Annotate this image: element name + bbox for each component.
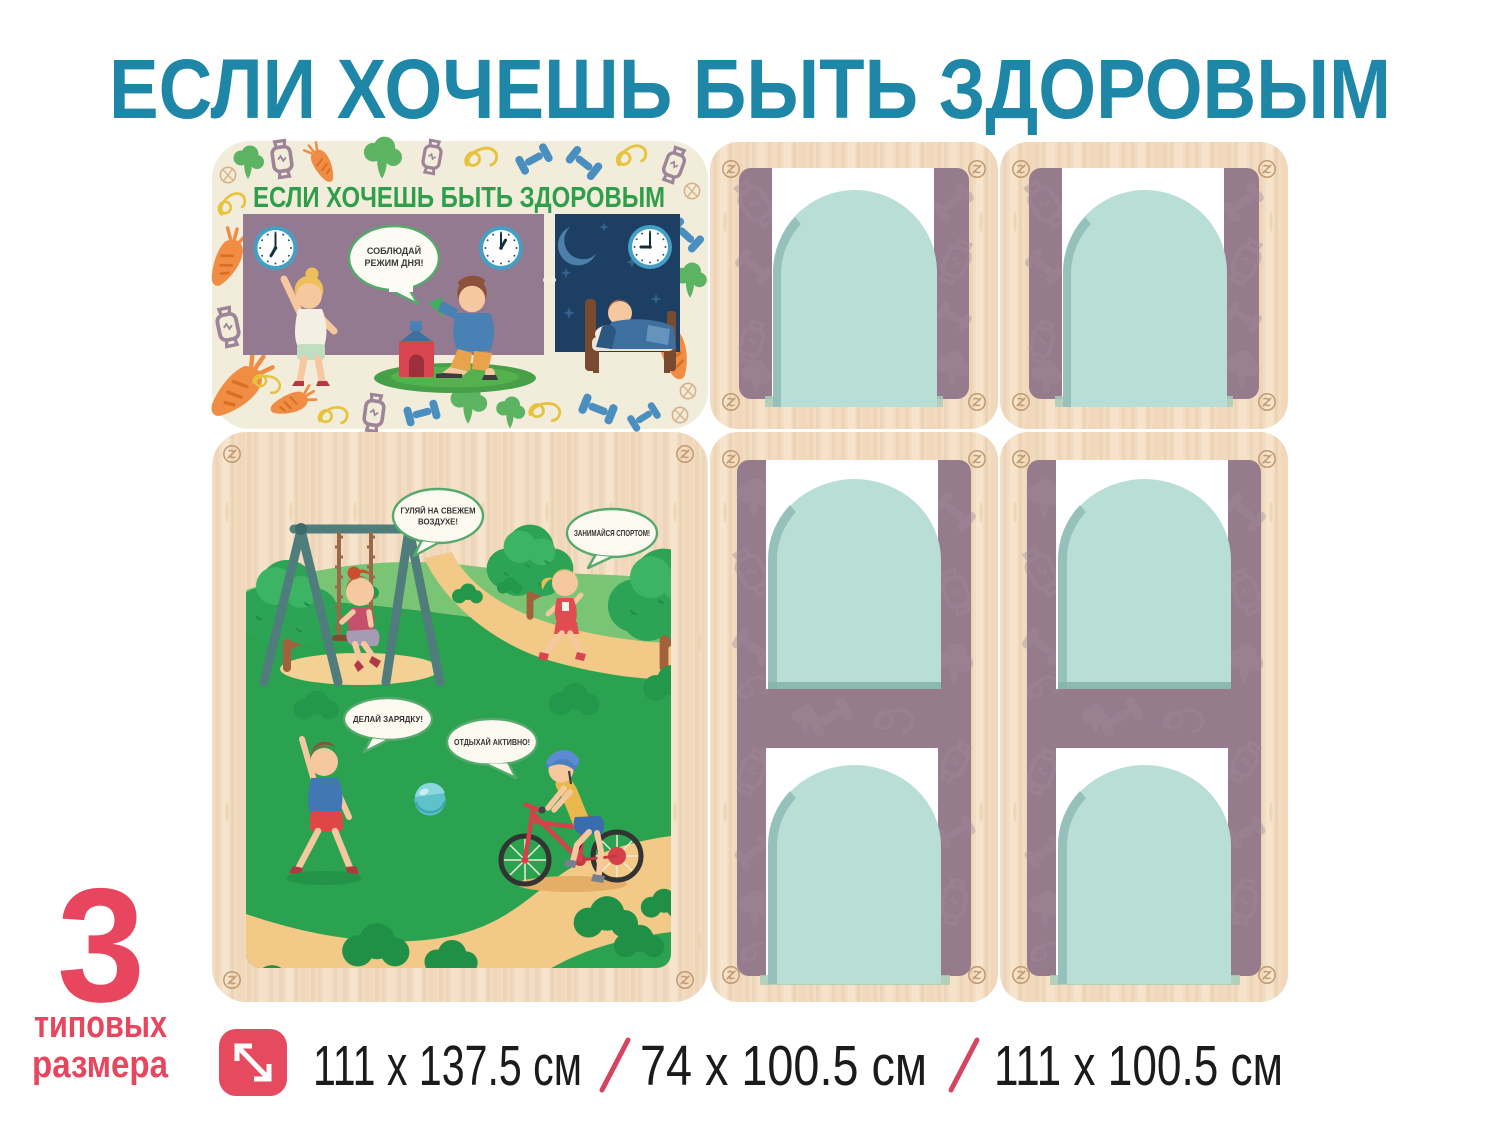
svg-text:74 x 100.5 см: 74 x 100.5 см xyxy=(640,1034,927,1098)
svg-text:ОТДЫХАЙ АКТИВНО!: ОТДЫХАЙ АКТИВНО! xyxy=(454,736,530,747)
svg-text:ВОЗДУХЕ!: ВОЗДУХЕ! xyxy=(418,517,458,527)
svg-text:ДЕЛАЙ ЗАРЯДКУ!: ДЕЛАЙ ЗАРЯДКУ! xyxy=(353,713,423,724)
svg-text:ЗАНИМАЙСЯ СПОРТОМ!: ЗАНИМАЙСЯ СПОРТОМ! xyxy=(574,527,650,538)
svg-text:ЕСЛИ ХОЧЕШЬ БЫТЬ ЗДОРОВЫМ: ЕСЛИ ХОЧЕШЬ БЫТЬ ЗДОРОВЫМ xyxy=(109,42,1391,136)
svg-text:111 x 137.5 см: 111 x 137.5 см xyxy=(313,1034,582,1098)
svg-text:размера: размера xyxy=(32,1044,169,1086)
svg-text:ГУЛЯЙ НА СВЕЖЕМ: ГУЛЯЙ НА СВЕЖЕМ xyxy=(401,505,476,516)
svg-text:РЕЖИМ ДНЯ!: РЕЖИМ ДНЯ! xyxy=(365,258,424,268)
svg-text:ЕСЛИ ХОЧЕШЬ БЫТЬ ЗДОРОВЫМ: ЕСЛИ ХОЧЕШЬ БЫТЬ ЗДОРОВЫМ xyxy=(253,182,665,214)
svg-text:типовых: типовых xyxy=(34,1004,167,1046)
svg-text:111 x 100.5 см: 111 x 100.5 см xyxy=(994,1034,1283,1098)
svg-text:СОБЛЮДАЙ: СОБЛЮДАЙ xyxy=(367,245,421,256)
